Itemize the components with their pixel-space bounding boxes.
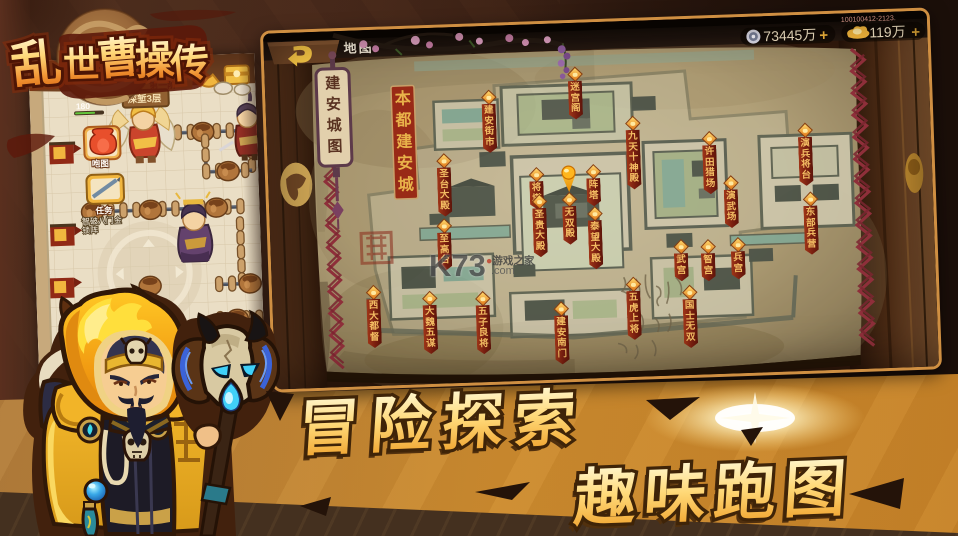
svg-text:世: 世 [62, 44, 100, 86]
svg-text:乱: 乱 [8, 34, 64, 95]
svg-text:冒险探索: 冒险探索 [296, 384, 588, 464]
svg-text:趣味跑图: 趣味跑图 [572, 454, 856, 534]
svg-text:传: 传 [168, 41, 212, 87]
